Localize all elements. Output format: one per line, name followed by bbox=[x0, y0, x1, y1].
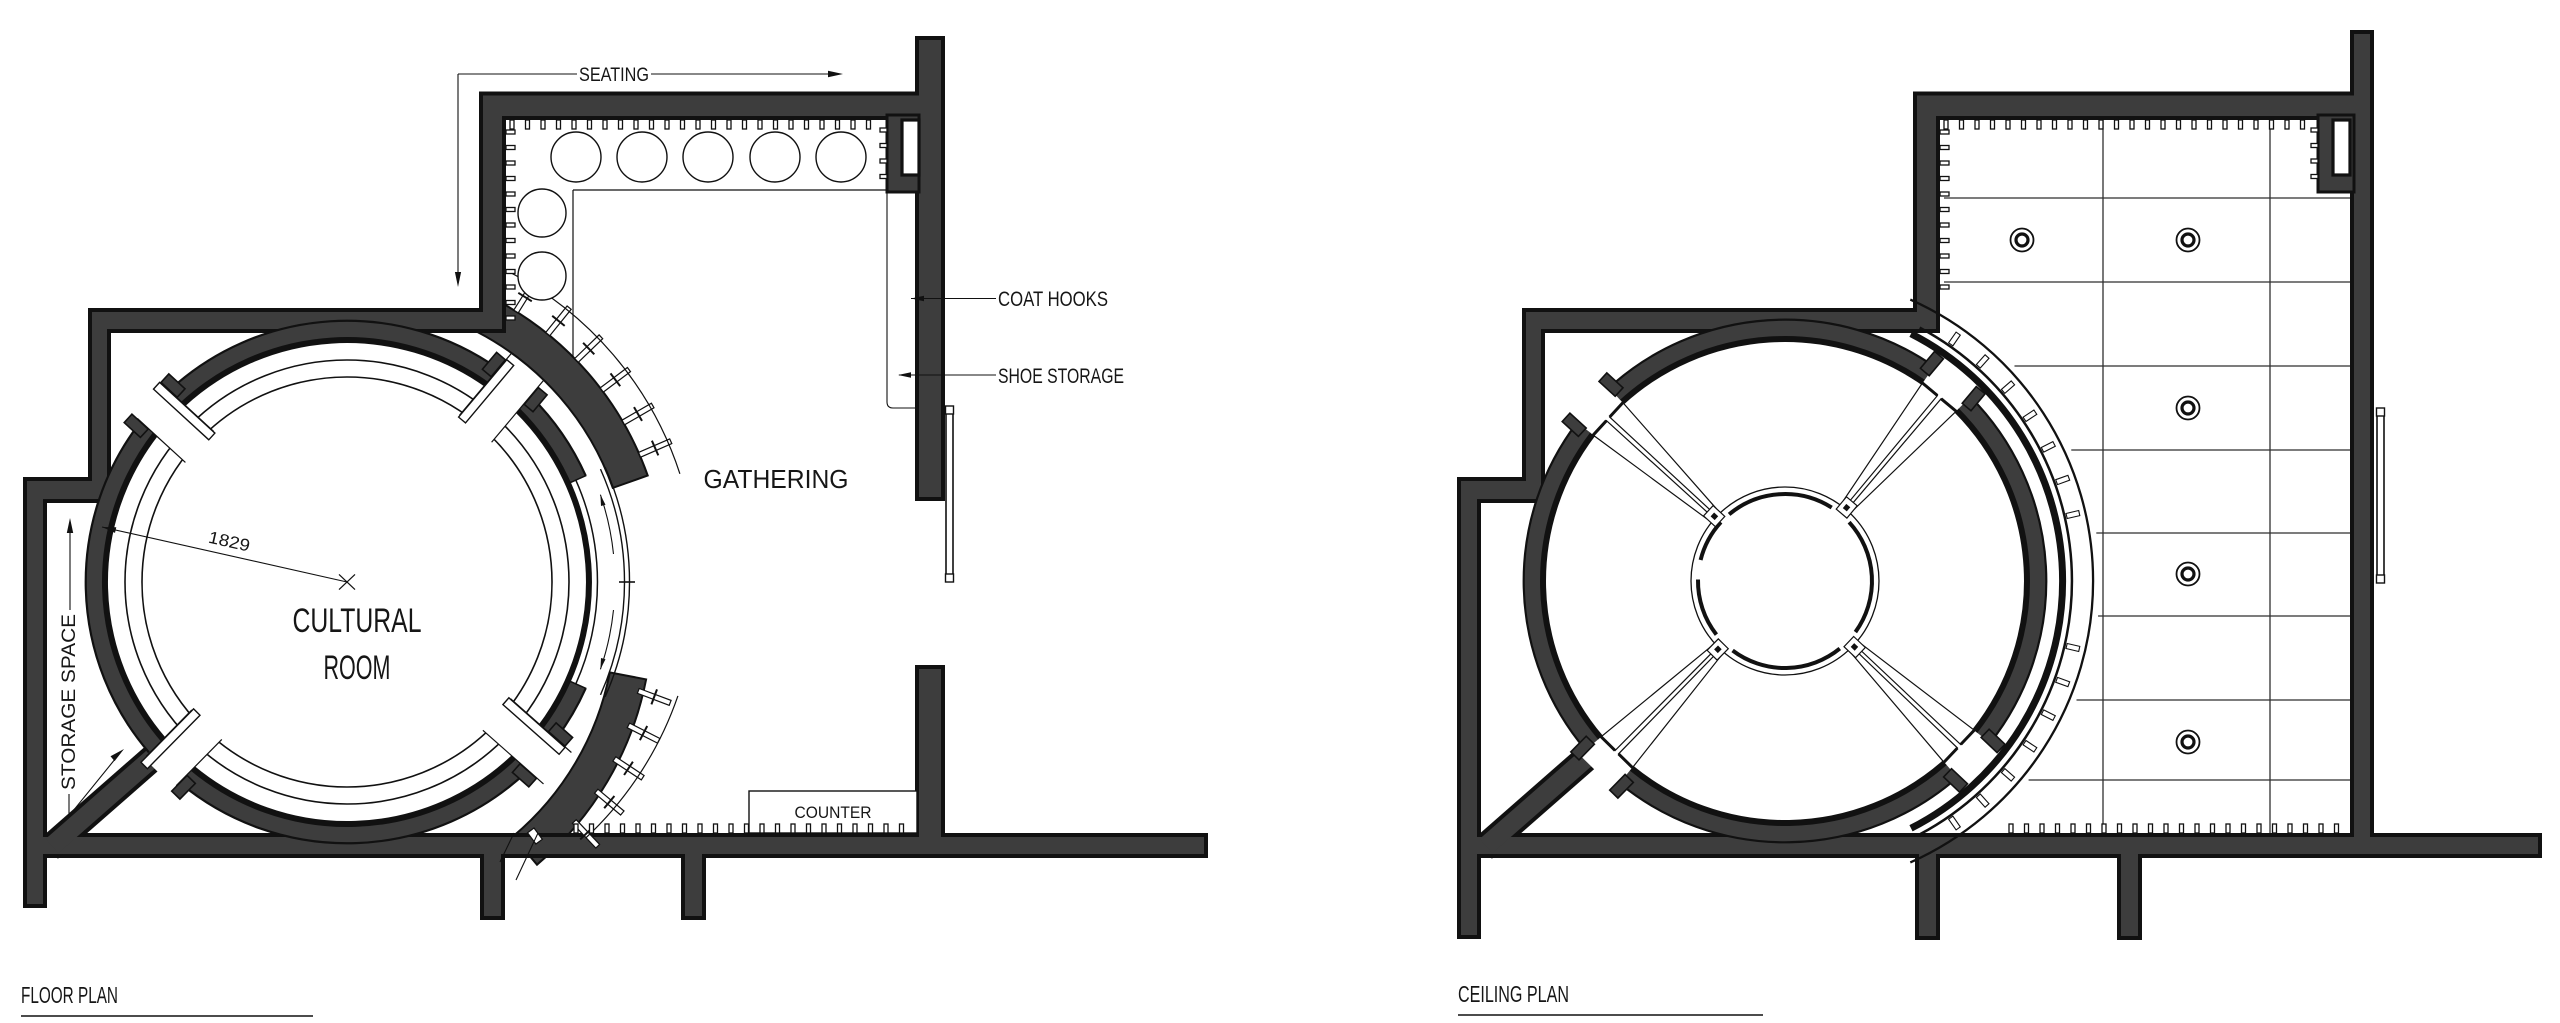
svg-text:CEILING PLAN: CEILING PLAN bbox=[1458, 981, 1569, 1007]
svg-text:STORAGE SPACE: STORAGE SPACE bbox=[58, 614, 80, 790]
svg-text:SHOE STORAGE: SHOE STORAGE bbox=[998, 365, 1124, 388]
svg-text:CULTURAL: CULTURAL bbox=[293, 602, 422, 640]
svg-text:ROOM: ROOM bbox=[324, 649, 391, 687]
svg-text:SEATING: SEATING bbox=[579, 65, 649, 86]
svg-text:GATHERING: GATHERING bbox=[704, 464, 849, 494]
svg-text:COAT HOOKS: COAT HOOKS bbox=[998, 288, 1108, 311]
svg-text:FLOOR PLAN: FLOOR PLAN bbox=[21, 982, 118, 1008]
svg-text:COUNTER: COUNTER bbox=[795, 804, 872, 822]
